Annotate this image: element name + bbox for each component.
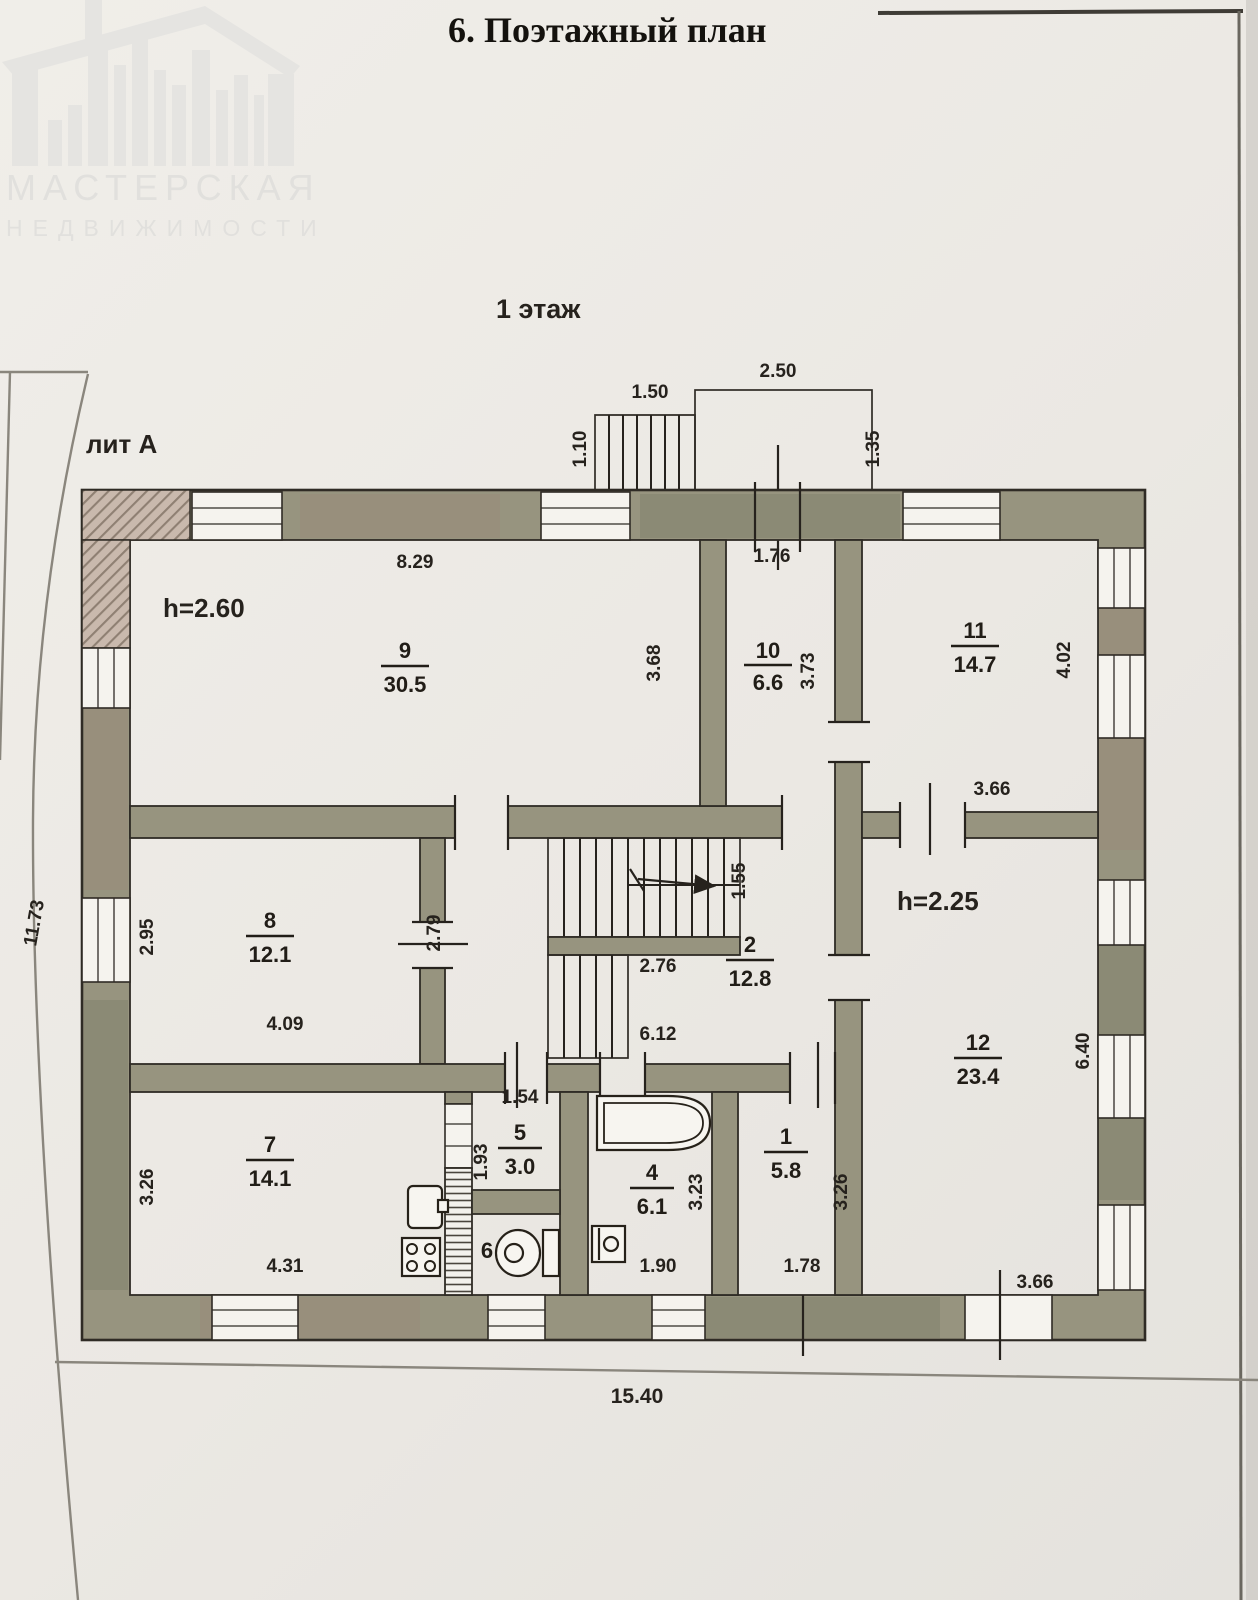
room-6-number: 6 bbox=[481, 1238, 493, 1263]
room-10-area: 6.6 bbox=[753, 670, 784, 695]
room-8-area: 12.1 bbox=[249, 942, 292, 967]
room-2-area: 12.8 bbox=[729, 966, 772, 991]
window-left-2 bbox=[82, 898, 130, 982]
dim-porch-width: 2.50 bbox=[760, 361, 797, 382]
watermark-logo: МАСТЕРСКАЯ НЕДВИЖИМОСТИ bbox=[2, 0, 327, 241]
stairs-landing-strip bbox=[548, 937, 740, 955]
wall-room5-room4 bbox=[560, 1092, 588, 1295]
left-pier-hatched bbox=[82, 540, 130, 648]
wall-room7-room5-vent bbox=[445, 1104, 472, 1168]
watermark-right-wall bbox=[268, 74, 294, 166]
wall-room11-room12-left bbox=[862, 812, 900, 838]
room-1-number: 1 bbox=[780, 1124, 792, 1149]
wall-hall-bottom-mid bbox=[547, 1064, 600, 1092]
porch-outline bbox=[695, 390, 872, 492]
dim-room4-right: 3.23 bbox=[686, 1174, 707, 1211]
window-bottom-1 bbox=[212, 1295, 298, 1340]
window-right-1 bbox=[1098, 548, 1145, 608]
dim-room10-right: 3.73 bbox=[798, 653, 819, 690]
window-bottom-3 bbox=[652, 1295, 705, 1340]
wall-room8-hall-upper bbox=[420, 838, 445, 922]
window-top-3 bbox=[903, 492, 1000, 540]
room-7-label: 7 14.1 bbox=[246, 1132, 294, 1191]
wall-room7-room5-top bbox=[445, 1092, 472, 1104]
window-bottom-2 bbox=[488, 1295, 545, 1340]
dim-room1-bottom: 1.78 bbox=[784, 1256, 821, 1277]
room-10-number: 10 bbox=[756, 638, 780, 663]
room-5-label: 5 3.0 bbox=[498, 1120, 542, 1179]
window-right-4 bbox=[1098, 1035, 1145, 1118]
room-11-number: 11 bbox=[963, 618, 986, 643]
wall-room9-bottom-left bbox=[130, 806, 455, 838]
room-12-area: 23.4 bbox=[957, 1064, 1001, 1089]
dim-room9-right: 3.68 bbox=[644, 645, 665, 682]
dim-room4-bottom: 1.90 bbox=[640, 1256, 677, 1277]
room-4-area: 6.1 bbox=[637, 1194, 668, 1219]
dim-building-left: 11.73 bbox=[20, 898, 49, 947]
dim-building-bottom: 15.40 bbox=[611, 1385, 664, 1408]
watermark-text-line2: НЕДВИЖИМОСТИ bbox=[6, 215, 327, 241]
dim-stairs-landing: 1.55 bbox=[729, 862, 750, 899]
wall-room8-hall-lower bbox=[420, 968, 445, 1064]
window-right-5 bbox=[1098, 1205, 1145, 1290]
scan-right-shadow bbox=[1246, 0, 1258, 1600]
dim-room11-right: 4.02 bbox=[1054, 642, 1075, 679]
toilet-icon bbox=[496, 1230, 559, 1276]
flue-chimney-hatched bbox=[445, 1168, 472, 1295]
dim-hall-bottom: 6.12 bbox=[640, 1024, 677, 1045]
room-9-label: 9 30.5 bbox=[381, 638, 429, 697]
height-label-left: h=2.60 bbox=[163, 593, 245, 623]
wall-center-vertical-lower bbox=[835, 1000, 862, 1295]
dim-room8-bottom: 4.09 bbox=[267, 1014, 304, 1035]
page-bottom-line bbox=[55, 1362, 1258, 1380]
bottom-wall-opening bbox=[965, 1295, 1052, 1340]
stairs-lower-flight-treads bbox=[564, 955, 612, 1058]
height-label-right: h=2.25 bbox=[897, 886, 979, 916]
floor-plan-drawing: МАСТЕРСКАЯ НЕДВИЖИМОСТИ 6. Поэтажный пла… bbox=[0, 0, 1258, 1600]
stairs-upper-flight-treads bbox=[564, 838, 724, 937]
dim-room7-bottom: 4.31 bbox=[267, 1256, 304, 1277]
room-4-label: 4 6.1 bbox=[630, 1160, 674, 1219]
wall-room5-room6 bbox=[472, 1190, 560, 1214]
scan-right-edge-line bbox=[1239, 11, 1241, 1600]
dim-room5-top: 1.54 bbox=[502, 1087, 539, 1108]
room-11-area: 14.7 bbox=[954, 652, 997, 677]
floor-label: 1 этаж bbox=[496, 294, 581, 324]
dim-hall-partition: 2.79 bbox=[424, 915, 445, 952]
dim-porch-depth: 1.35 bbox=[863, 430, 884, 467]
scanned-floor-plan-page: МАСТЕРСКАЯ НЕДВИЖИМОСТИ 6. Поэтажный пла… bbox=[0, 0, 1258, 1600]
liter-label: лит А bbox=[86, 429, 157, 459]
room-5-number: 5 bbox=[514, 1120, 526, 1145]
wall-room9-room10 bbox=[700, 540, 726, 806]
wall-hall-bottom-left bbox=[130, 1064, 505, 1092]
stairs-lower-flight-outline bbox=[548, 955, 628, 1058]
window-right-3 bbox=[1098, 880, 1145, 945]
wall-hall-bottom-right bbox=[645, 1064, 790, 1092]
kitchen-sink-icon bbox=[408, 1186, 448, 1228]
room-9-number: 9 bbox=[399, 638, 411, 663]
room-9-area: 30.5 bbox=[384, 672, 427, 697]
room-12-number: 12 bbox=[966, 1030, 990, 1055]
window-top-2 bbox=[541, 492, 630, 540]
window-top-1 bbox=[192, 492, 282, 540]
dim-porch-steps-depth: 1.10 bbox=[570, 431, 591, 468]
dim-room7-left: 3.26 bbox=[137, 1169, 158, 1206]
dim-porch-steps-width: 1.50 bbox=[632, 382, 669, 403]
page-fold-left-line bbox=[0, 372, 10, 760]
dim-room8-left: 2.95 bbox=[137, 918, 158, 955]
room-5-area: 3.0 bbox=[505, 1154, 536, 1179]
window-right-2 bbox=[1098, 655, 1145, 738]
page-title: 6. Поэтажный план bbox=[448, 10, 767, 50]
dim-room12-bottom: 3.66 bbox=[1017, 1272, 1054, 1293]
dim-room1-right: 3.26 bbox=[831, 1174, 852, 1211]
stove-icon bbox=[402, 1238, 440, 1276]
watermark-roof bbox=[2, 6, 300, 78]
page-fold-curve bbox=[33, 374, 88, 1600]
wall-room9-bottom-right bbox=[508, 806, 782, 838]
outside-steps-treads bbox=[609, 415, 679, 492]
room-7-number: 7 bbox=[264, 1132, 276, 1157]
room-2-number: 2 bbox=[744, 932, 756, 957]
wall-room10-room11-upper bbox=[835, 540, 862, 722]
room-8-label: 8 12.1 bbox=[246, 908, 294, 967]
dim-room9-top: 8.29 bbox=[397, 552, 434, 573]
corner-pier-hatched bbox=[82, 490, 190, 540]
porch bbox=[595, 390, 872, 570]
door-ticks bbox=[398, 482, 1000, 1360]
room-1-label: 1 5.8 bbox=[764, 1124, 808, 1183]
dim-room10-top: 1.76 bbox=[754, 546, 791, 567]
wall-room11-room12-right bbox=[965, 812, 1098, 838]
room-10-label: 10 6.6 bbox=[744, 638, 792, 695]
dim-room11-bottom: 3.66 bbox=[974, 779, 1011, 800]
room-8-number: 8 bbox=[264, 908, 276, 933]
room-11-label: 11 14.7 bbox=[951, 618, 999, 677]
dim-room5-left: 1.93 bbox=[471, 1144, 492, 1181]
bathroom-sink-icon bbox=[592, 1226, 625, 1262]
watermark-text-line1: МАСТЕРСКАЯ bbox=[6, 167, 321, 208]
room-12-label: 12 23.4 bbox=[954, 1030, 1002, 1089]
scan-top-edge-line bbox=[878, 11, 1243, 13]
watermark-left-wall bbox=[12, 68, 38, 166]
room-7-area: 14.1 bbox=[249, 1166, 292, 1191]
room-1-area: 5.8 bbox=[771, 1158, 802, 1183]
wall-center-vertical-mid bbox=[835, 762, 862, 955]
dim-room12-right: 6.40 bbox=[1073, 1033, 1094, 1070]
dim-stairs-width: 2.76 bbox=[640, 956, 677, 977]
window-left-1 bbox=[82, 648, 130, 708]
wall-room4-room1 bbox=[712, 1092, 738, 1295]
room-4-number: 4 bbox=[646, 1160, 659, 1185]
bathtub-icon bbox=[597, 1096, 710, 1150]
